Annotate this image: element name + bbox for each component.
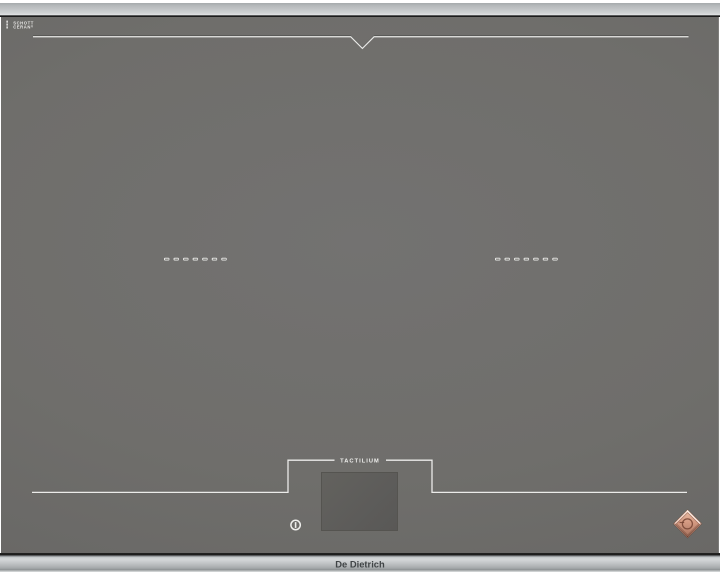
svg-text:CERAN®: CERAN®	[13, 24, 33, 29]
svg-text:TACTILIUM: TACTILIUM	[340, 459, 380, 465]
svg-text:De Dietrich: De Dietrich	[335, 558, 385, 569]
